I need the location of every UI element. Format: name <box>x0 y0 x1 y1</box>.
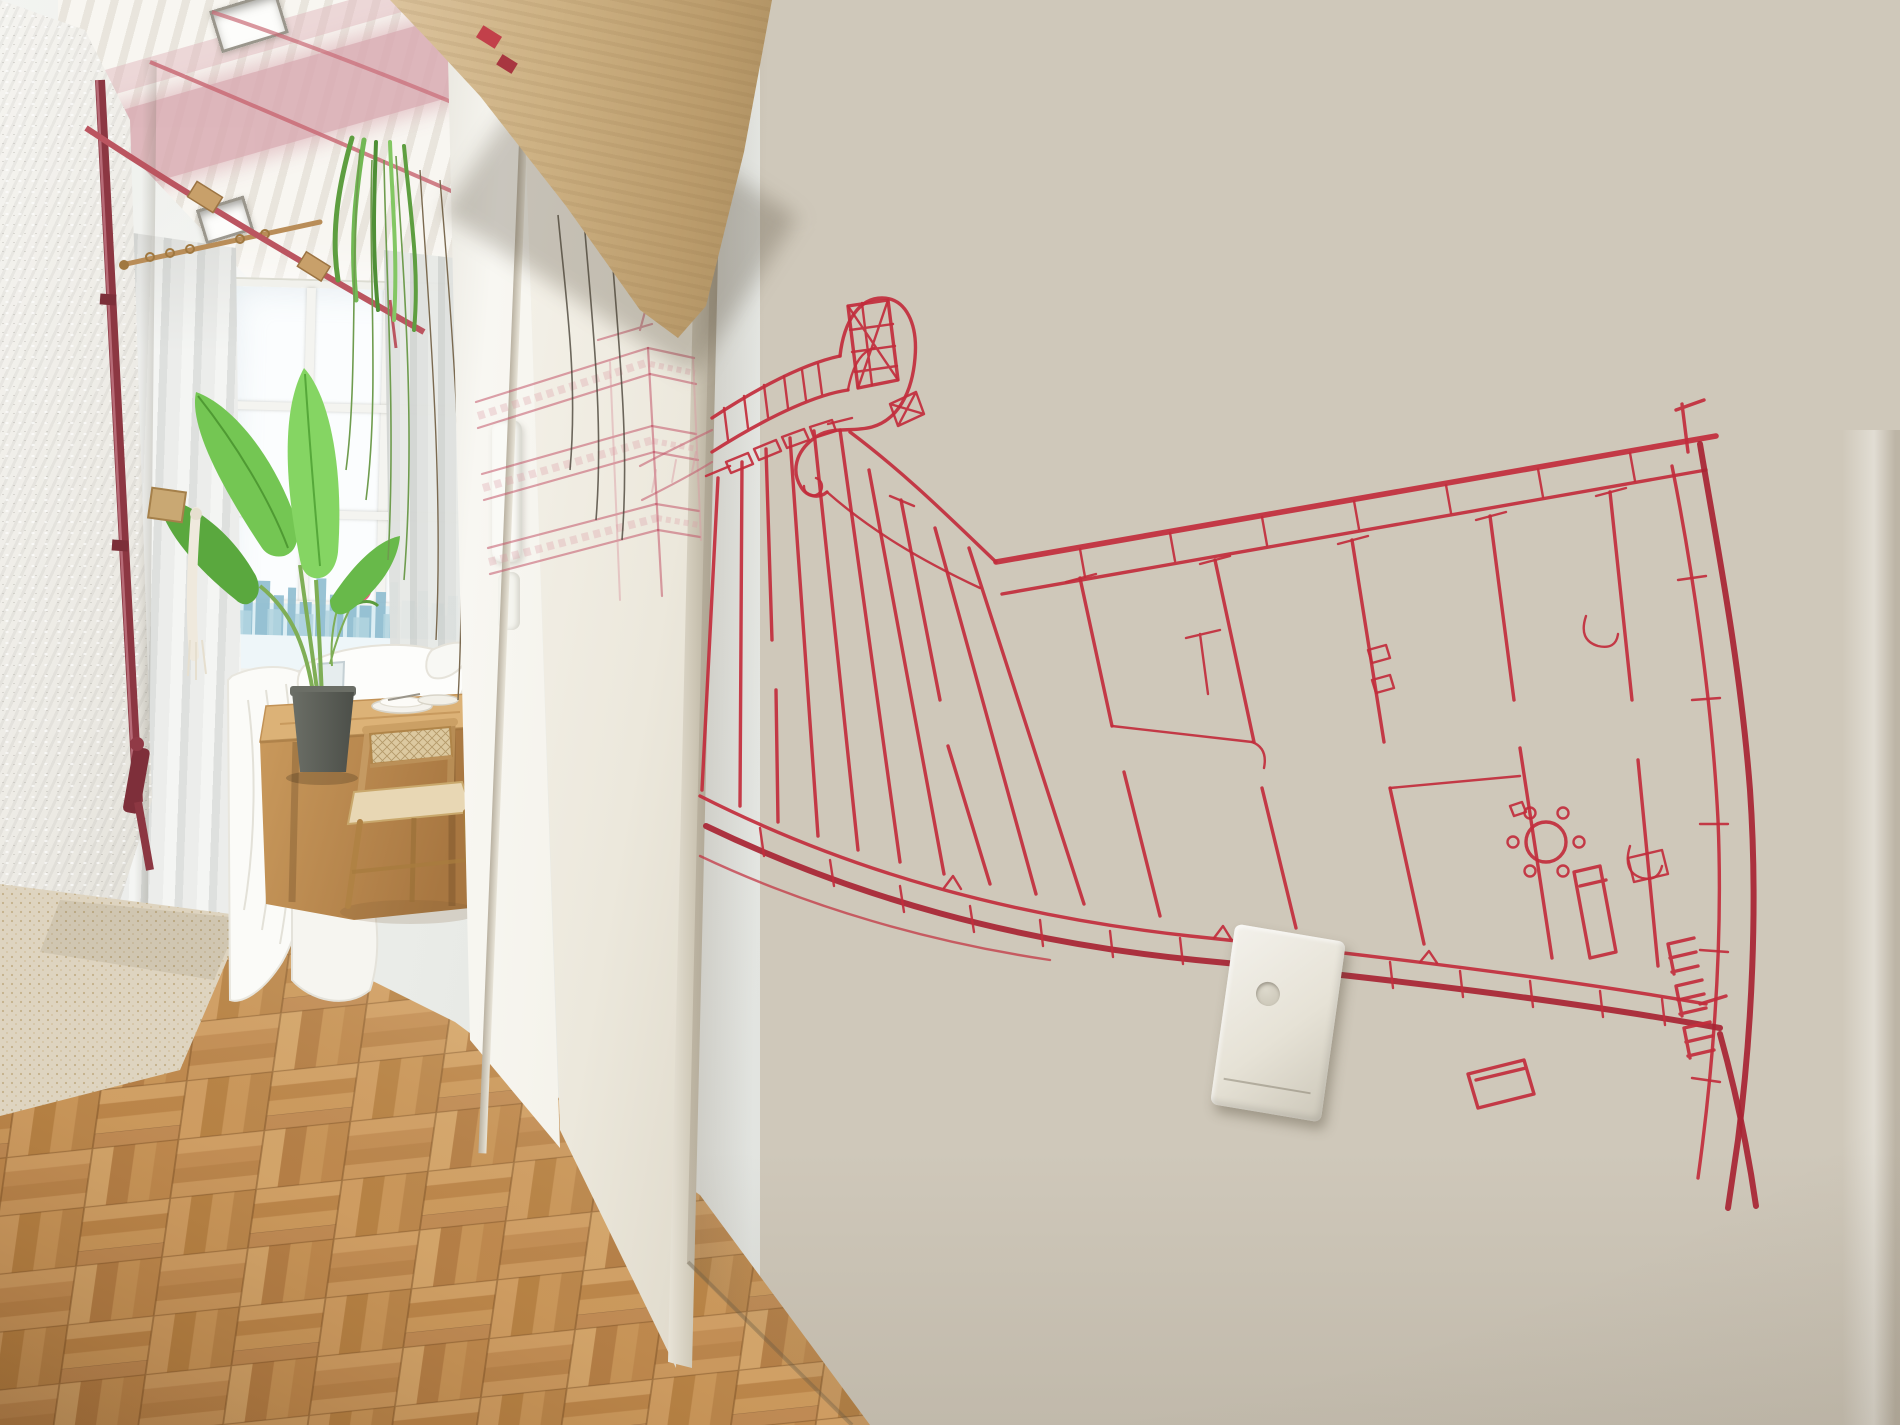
light-switch-button[interactable] <box>1254 980 1281 1008</box>
mural-drawing <box>0 0 1900 1425</box>
hallway-photo <box>0 0 1900 1425</box>
light-switch-seam <box>1224 1078 1311 1095</box>
mural-round-table <box>1508 802 1585 877</box>
wall-base-shadow <box>688 1262 852 1425</box>
